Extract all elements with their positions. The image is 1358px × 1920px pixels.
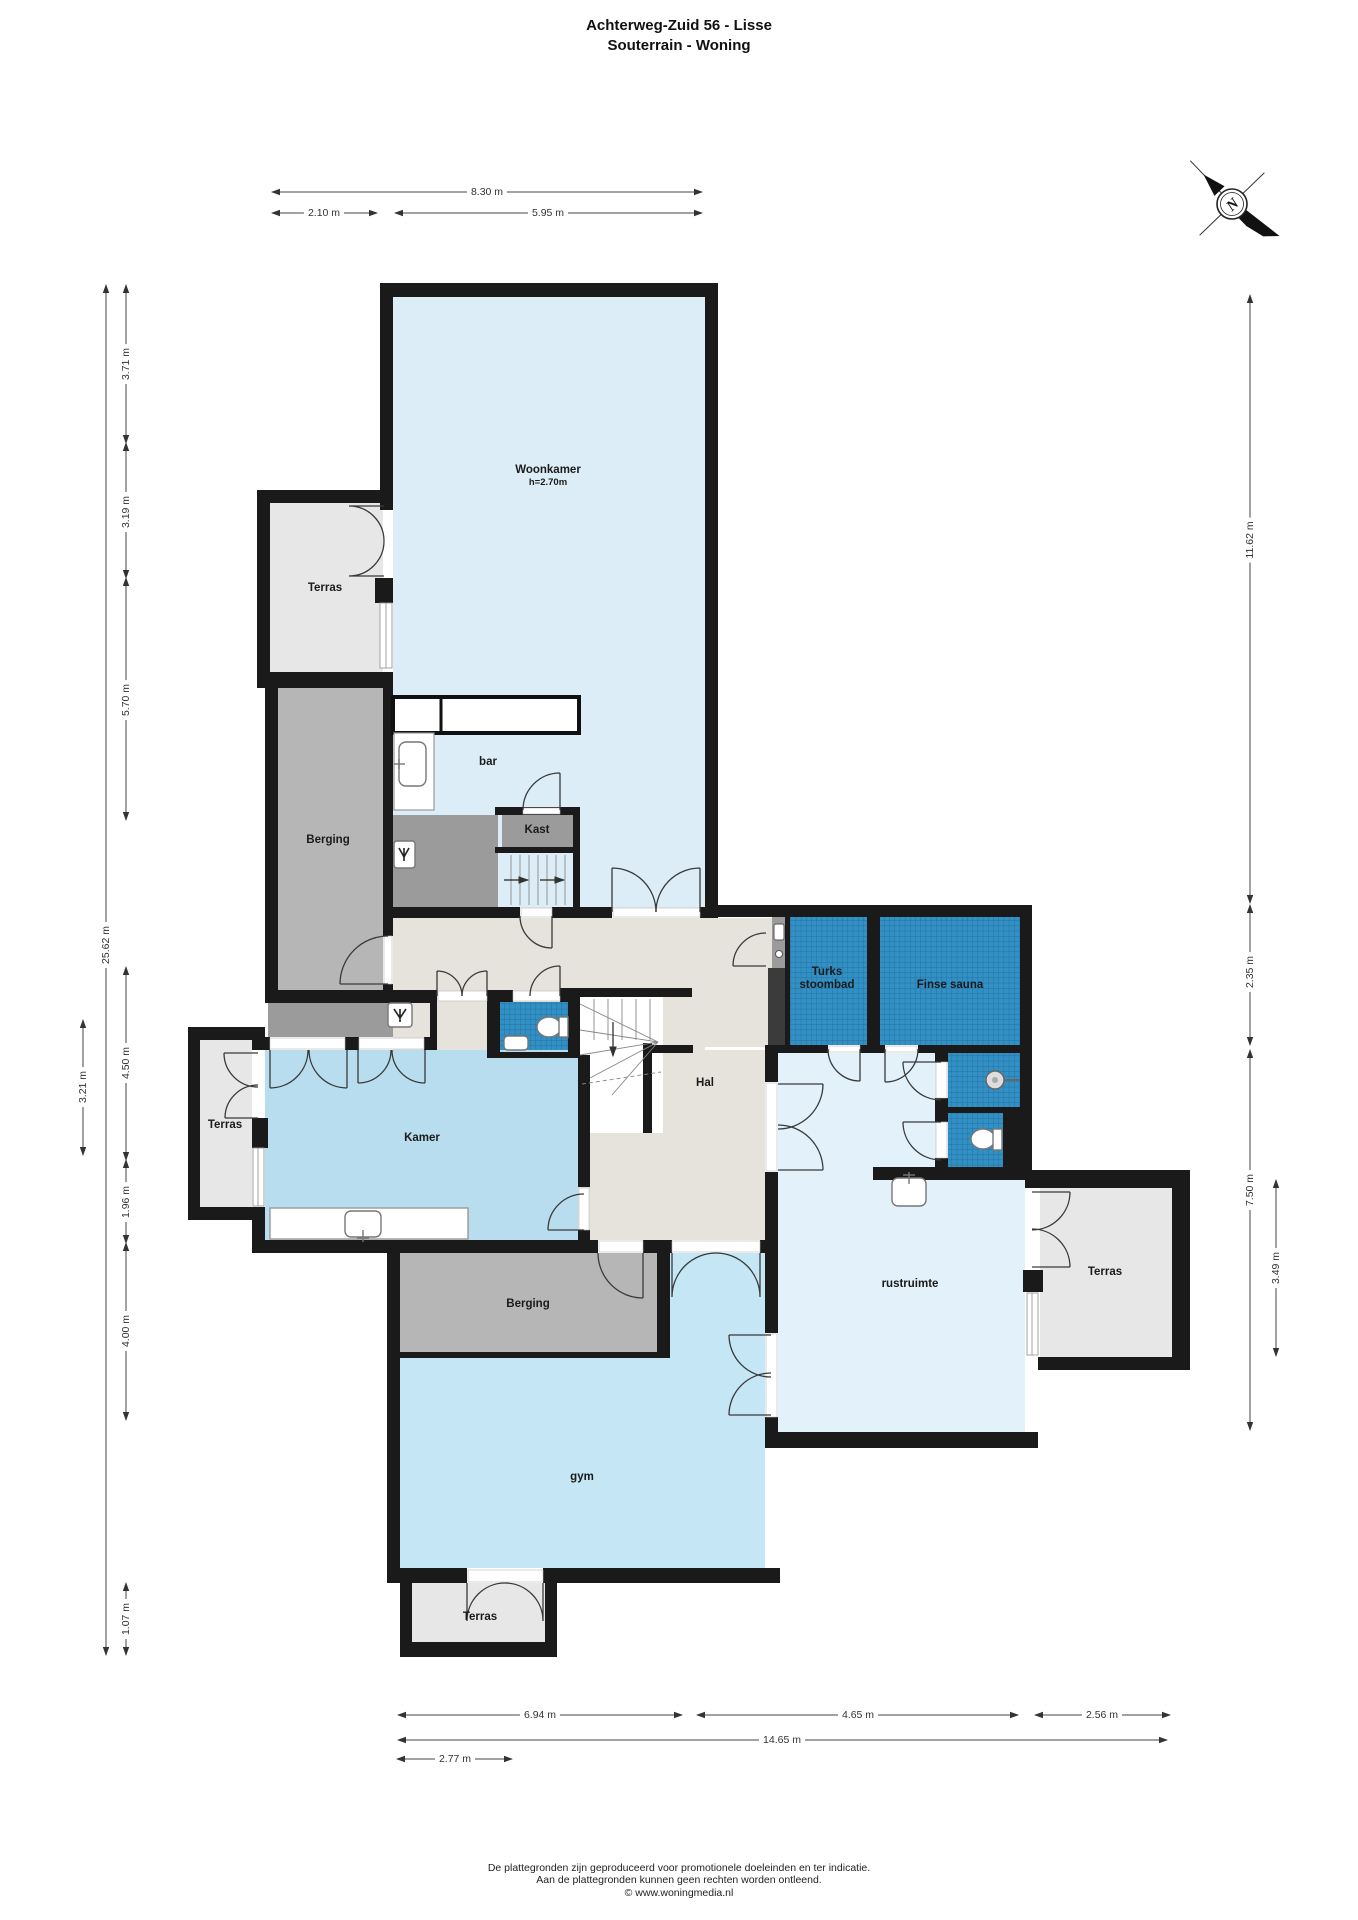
toilet-icon bbox=[971, 1129, 1002, 1150]
room-label-turks-stoombad: Turks stoombad bbox=[800, 966, 855, 992]
dim-left-total: 25.62 m bbox=[100, 922, 112, 968]
dim-left-6: 4.00 m bbox=[120, 1311, 132, 1351]
compass-north-icon: N bbox=[1158, 130, 1303, 276]
cv-unit-icon bbox=[394, 841, 415, 868]
room-label-terras-zuid: Terras bbox=[463, 1611, 497, 1623]
room-label-gym: gym bbox=[570, 1471, 594, 1483]
dim-right-3: 7.50 m bbox=[1244, 1170, 1256, 1210]
dim-top-total: 8.30 m bbox=[467, 186, 507, 198]
room-label-hal: Hal bbox=[696, 1077, 714, 1089]
dim-left-2: 3.19 m bbox=[120, 492, 132, 532]
floorplan-page: Achterweg-Zuid 56 - Lisse Souterrain - W… bbox=[0, 0, 1358, 1920]
room-label-bar: bar bbox=[479, 756, 497, 768]
footer-credit: © www.woningmedia.nl bbox=[0, 1887, 1358, 1899]
dim-top-left: 2.10 m bbox=[304, 207, 344, 219]
room-label-terras-west: Terras bbox=[208, 1119, 242, 1131]
bar-sink-icon bbox=[394, 742, 426, 786]
room-label-terras-nw: Terras bbox=[308, 582, 342, 594]
footer-line-1: De plattegronden zijn geproduceerd voor … bbox=[0, 1862, 1358, 1874]
room-label-kast: Kast bbox=[525, 824, 550, 836]
dim-bottom-2: 4.65 m bbox=[838, 1709, 878, 1721]
floor-plan-canvas: N bbox=[0, 0, 1358, 1920]
room-label-finse-sauna: Finse sauna bbox=[917, 979, 983, 991]
dim-top-right: 5.95 m bbox=[528, 207, 568, 219]
footer-line-2: Aan de plattegronden kunnen geen rechten… bbox=[0, 1874, 1358, 1886]
room-label-terras-oost: Terras bbox=[1088, 1266, 1122, 1278]
dim-left-4: 4.50 m bbox=[120, 1043, 132, 1083]
dim-bottom-total: 14.65 m bbox=[759, 1734, 805, 1746]
dim-right-terras: 3.49 m bbox=[1270, 1248, 1282, 1288]
dim-left-terras: 3.21 m bbox=[77, 1067, 89, 1107]
room-label-woonkamer: Woonkamer h=2.70m bbox=[515, 464, 581, 488]
room-label-berging-boven: Berging bbox=[306, 834, 349, 846]
dim-left-3: 5.70 m bbox=[120, 680, 132, 720]
dim-bottom-3: 2.56 m bbox=[1082, 1709, 1122, 1721]
kamer-counter bbox=[270, 1208, 468, 1242]
dim-left-5: 1.96 m bbox=[120, 1182, 132, 1222]
dim-left-1: 3.71 m bbox=[120, 344, 132, 384]
dim-bottom-terras: 2.77 m bbox=[435, 1753, 475, 1765]
dim-right-1: 11.62 m bbox=[1244, 517, 1256, 562]
wardrobe-unit-icon bbox=[388, 1003, 412, 1027]
room-note-ceiling-height: h=2.70m bbox=[515, 477, 581, 488]
room-label-kamer: Kamer bbox=[404, 1132, 440, 1144]
room-label-rustruimte: rustruimte bbox=[882, 1278, 939, 1290]
wc-basin-icon bbox=[504, 1036, 528, 1050]
room-label-berging-onder: Berging bbox=[506, 1298, 549, 1310]
footer-disclaimer: De plattegronden zijn geproduceerd voor … bbox=[0, 1862, 1358, 1899]
dim-right-2: 2.35 m bbox=[1244, 952, 1256, 992]
dim-bottom-1: 6.94 m bbox=[520, 1709, 560, 1721]
wc-toilet-icon bbox=[537, 1017, 568, 1037]
dim-left-7: 1.07 m bbox=[120, 1599, 132, 1639]
